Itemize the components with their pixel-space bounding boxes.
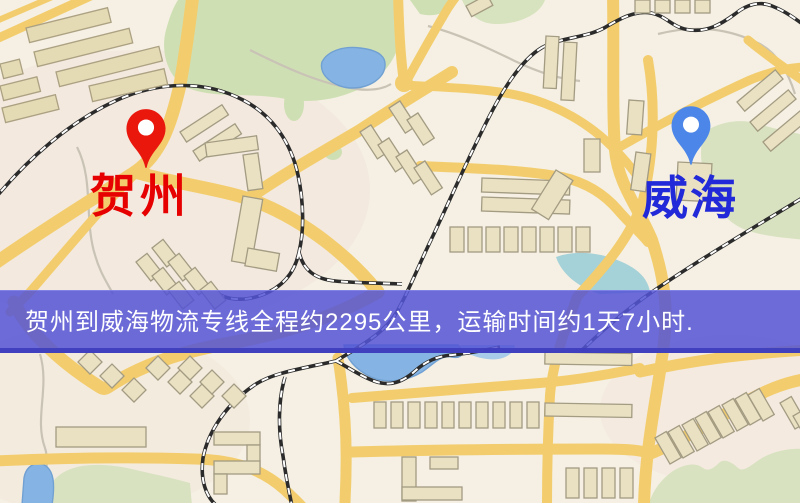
route-info-banner: 贺州到威海物流专线全程约2295公里，运输时间约1天7小时. (0, 290, 800, 353)
destination-pin-icon[interactable] (667, 104, 715, 168)
pond (321, 48, 385, 88)
route-info-text: 贺州到威海物流专线全程约2295公里，运输时间约1天7小时. (0, 302, 694, 337)
origin-city-label: 贺州 (90, 174, 190, 220)
origin-pin-icon[interactable] (123, 106, 169, 172)
destination-city-label: 威海 (642, 176, 738, 222)
logistics-route-map: 贺州 威海 贺州到威海物流专线全程约2295公里，运输时间约1天7小时. (0, 0, 800, 503)
map-canvas (0, 0, 800, 503)
